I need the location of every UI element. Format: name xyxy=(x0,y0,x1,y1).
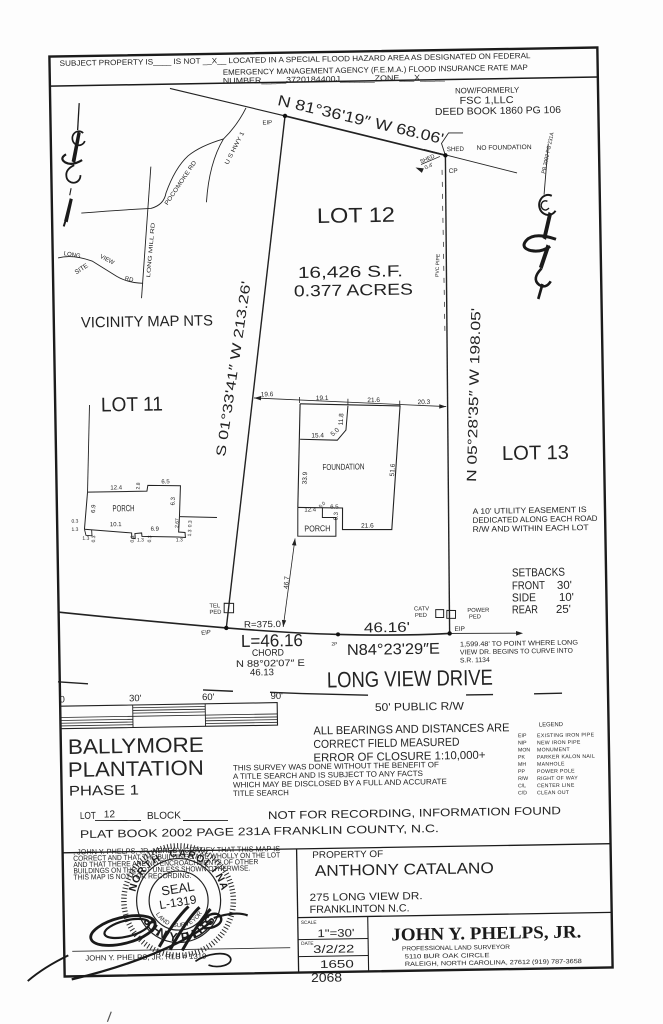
svg-text:6.9: 6.9 xyxy=(91,504,97,513)
svg-text:12.4: 12.4 xyxy=(304,507,316,513)
svg-text:2P: 2P xyxy=(331,641,337,647)
svg-text:10': 10' xyxy=(559,592,574,604)
svg-text:21.6: 21.6 xyxy=(361,523,374,530)
svg-text:2.8: 2.8 xyxy=(136,482,142,489)
svg-text:60': 60' xyxy=(202,692,215,703)
svg-text:R/W: R/W xyxy=(518,776,528,782)
svg-text:EXISTING IRON PIPE: EXISTING IRON PIPE xyxy=(537,732,595,739)
svg-text:16,426 S.F.: 16,426 S.F. xyxy=(298,263,403,282)
svg-text:10.1: 10.1 xyxy=(110,522,122,528)
svg-text:1.3: 1.3 xyxy=(187,529,193,536)
svg-text:46.16': 46.16' xyxy=(364,619,410,636)
svg-text:RIGHT OF WAY: RIGHT OF WAY xyxy=(537,775,578,782)
svg-text:CATV: CATV xyxy=(414,606,429,612)
svg-text:6.5: 6.5 xyxy=(161,479,170,485)
svg-text:LEGEND: LEGEND xyxy=(539,722,564,728)
svg-text:19.6: 19.6 xyxy=(261,391,274,398)
svg-text:C/D: C/D xyxy=(518,790,527,796)
svg-text:LOT 12: LOT 12 xyxy=(317,204,395,228)
svg-text:TITLE SEARCH: TITLE SEARCH xyxy=(233,788,289,798)
svg-text:6.9: 6.9 xyxy=(151,527,160,533)
svg-text:MH: MH xyxy=(518,762,526,768)
svg-text:1.3: 1.3 xyxy=(71,527,78,533)
svg-text:1.3: 1.3 xyxy=(137,537,144,543)
svg-text:6.3: 6.3 xyxy=(170,496,176,505)
svg-text:LOT: LOT xyxy=(80,811,96,822)
svg-text:1"=30': 1"=30' xyxy=(317,927,354,940)
svg-text:0.3: 0.3 xyxy=(71,519,78,525)
svg-text:33.9: 33.9 xyxy=(302,471,310,484)
svg-text:21.6: 21.6 xyxy=(367,397,380,404)
svg-text:PED: PED xyxy=(469,614,481,620)
svg-text:CORRECT FIELD MEASURED: CORRECT FIELD MEASURED xyxy=(313,737,459,751)
svg-text:DEED BOOK 1860 PG 106: DEED BOOK 1860 PG 106 xyxy=(435,105,562,118)
svg-text:MONUMENT: MONUMENT xyxy=(537,747,571,754)
svg-text:FOUNDATION: FOUNDATION xyxy=(322,461,364,472)
svg-text:NOW/FORMERLY: NOW/FORMERLY xyxy=(455,85,520,95)
svg-text:PORCH: PORCH xyxy=(304,523,330,533)
svg-text:2.67: 2.67 xyxy=(174,518,181,528)
svg-text:11.8: 11.8 xyxy=(338,413,346,426)
svg-text:90': 90' xyxy=(270,691,283,702)
svg-text:ANTHONY CATALANO: ANTHONY CATALANO xyxy=(315,860,494,880)
svg-text:0.3: 0.3 xyxy=(187,520,193,527)
svg-text:PHASE 1: PHASE 1 xyxy=(69,781,140,798)
svg-text:EIP: EIP xyxy=(262,120,272,126)
svg-text:46.13: 46.13 xyxy=(250,667,274,678)
svg-text:6.3: 6.3 xyxy=(334,511,340,520)
svg-text:MON: MON xyxy=(518,747,530,753)
svg-text:PK: PK xyxy=(518,755,526,761)
svg-text:NIP: NIP xyxy=(518,740,527,746)
svg-text:0.3: 0.3 xyxy=(91,535,97,542)
svg-text:0: 0 xyxy=(59,694,64,705)
svg-text:C/L: C/L xyxy=(518,783,526,789)
svg-text:15.4: 15.4 xyxy=(311,432,324,439)
svg-text:LOT 13: LOT 13 xyxy=(502,442,569,465)
svg-text:50' PUBLIC R/W: 50' PUBLIC R/W xyxy=(375,701,465,714)
svg-text:PVC PIPE: PVC PIPE xyxy=(435,253,442,277)
svg-text:SETBACKS: SETBACKS xyxy=(512,567,565,580)
svg-text:N84°23'29″E: N84°23'29″E xyxy=(347,641,440,660)
svg-text:30': 30' xyxy=(557,580,572,592)
svg-text:1.3: 1.3 xyxy=(82,536,89,542)
svg-text:REAR: REAR xyxy=(512,604,538,616)
svg-text:S.R. 1134: S.R. 1134 xyxy=(460,657,490,664)
svg-text:FRANKLINTON N.C.: FRANKLINTON N.C. xyxy=(309,902,409,916)
svg-text:CENTER LINE: CENTER LINE xyxy=(537,783,575,790)
svg-text:NO FOUNDATION: NO FOUNDATION xyxy=(477,144,532,152)
svg-text:1650: 1650 xyxy=(320,958,354,971)
svg-text:PLANTATION: PLANTATION xyxy=(68,757,204,782)
svg-text:BALLYMORE: BALLYMORE xyxy=(68,734,204,759)
svg-text:SHED: SHED xyxy=(447,146,464,153)
svg-text:FRONT: FRONT xyxy=(512,580,545,593)
svg-text:MANHOLE: MANHOLE xyxy=(537,761,565,767)
svg-text:DATE: DATE xyxy=(301,941,314,947)
svg-text:20.3: 20.3 xyxy=(418,399,431,406)
svg-text:0.3: 0.3 xyxy=(130,535,136,542)
svg-text:PED: PED xyxy=(415,613,427,619)
svg-text:R/W AND WITHIN EACH LOT: R/W AND WITHIN EACH LOT xyxy=(473,523,589,534)
svg-text:PROPERTY OF: PROPERTY OF xyxy=(312,849,383,861)
svg-text:EIP: EIP xyxy=(454,626,465,633)
svg-text:51.6: 51.6 xyxy=(389,463,397,476)
svg-text:CLEAN OUT: CLEAN OUT xyxy=(537,790,570,797)
svg-text:PORCH: PORCH xyxy=(112,503,134,513)
svg-text:EIP: EIP xyxy=(518,733,527,739)
svg-text:0.377 ACRES: 0.377 ACRES xyxy=(294,282,413,301)
svg-text:NEW IRON PIPE: NEW IRON PIPE xyxy=(537,740,581,747)
svg-text:SIDE: SIDE xyxy=(512,592,536,604)
svg-text:CP: CP xyxy=(449,168,458,175)
svg-text:PP: PP xyxy=(518,769,526,775)
svg-text:3/2/22: 3/2/22 xyxy=(313,943,354,956)
svg-text:LONG VIEW DRIVE: LONG VIEW DRIVE xyxy=(327,665,493,693)
svg-text:JOHN Y. PHELPS, JR.: JOHN Y. PHELPS, JR. xyxy=(391,921,581,944)
svg-text:6.5: 6.5 xyxy=(330,505,339,511)
svg-text:A: A xyxy=(178,847,187,860)
svg-text:SCALE: SCALE xyxy=(301,920,317,926)
svg-text:POWER: POWER xyxy=(467,608,489,614)
svg-text:0.3: 0.3 xyxy=(147,535,153,542)
svg-text:VICINITY MAP NTS: VICINITY MAP NTS xyxy=(81,312,213,331)
svg-text:12.4: 12.4 xyxy=(110,485,122,491)
svg-text:1.3: 1.3 xyxy=(176,537,183,543)
svg-text:R=375.0: R=375.0 xyxy=(244,619,281,630)
svg-text:2068: 2068 xyxy=(311,970,342,985)
svg-text:LOT 11: LOT 11 xyxy=(101,393,163,416)
svg-text:TEL: TEL xyxy=(209,603,221,609)
svg-text:25': 25' xyxy=(556,604,571,616)
svg-text:30': 30' xyxy=(129,693,142,704)
svg-text:PED: PED xyxy=(209,610,221,616)
svg-text:46.7: 46.7 xyxy=(283,576,291,589)
svg-text:POWER POLE: POWER POLE xyxy=(537,768,575,775)
svg-text:12: 12 xyxy=(104,809,116,820)
svg-text:19.1: 19.1 xyxy=(316,395,329,402)
svg-text:BLOCK: BLOCK xyxy=(147,810,182,822)
svg-text:PARKER KALON NAIL: PARKER KALON NAIL xyxy=(537,754,595,761)
